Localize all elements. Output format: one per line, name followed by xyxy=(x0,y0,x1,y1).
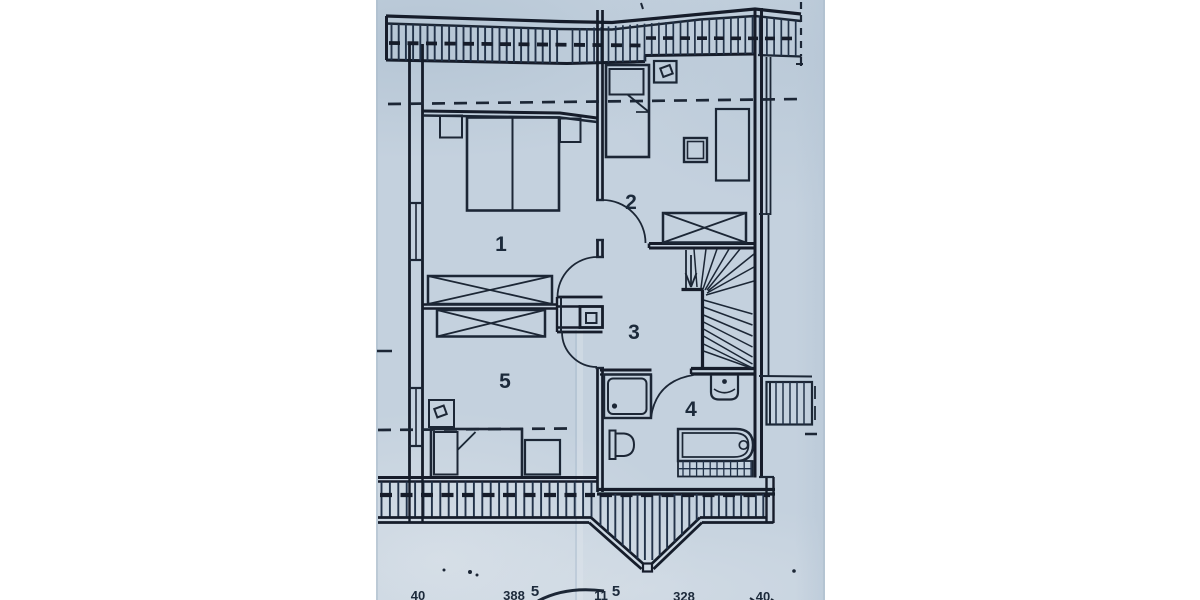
svg-text:40: 40 xyxy=(756,589,770,600)
svg-text:3: 3 xyxy=(628,321,640,344)
svg-text:2: 2 xyxy=(625,191,637,214)
svg-text:5: 5 xyxy=(499,370,511,393)
svg-text:5: 5 xyxy=(612,583,620,600)
svg-text:388: 388 xyxy=(503,588,525,600)
svg-text:4: 4 xyxy=(685,398,697,421)
svg-text:40: 40 xyxy=(411,588,425,600)
svg-text:328: 328 xyxy=(673,589,695,600)
svg-text:5: 5 xyxy=(531,583,539,600)
svg-text:1: 1 xyxy=(495,233,507,256)
